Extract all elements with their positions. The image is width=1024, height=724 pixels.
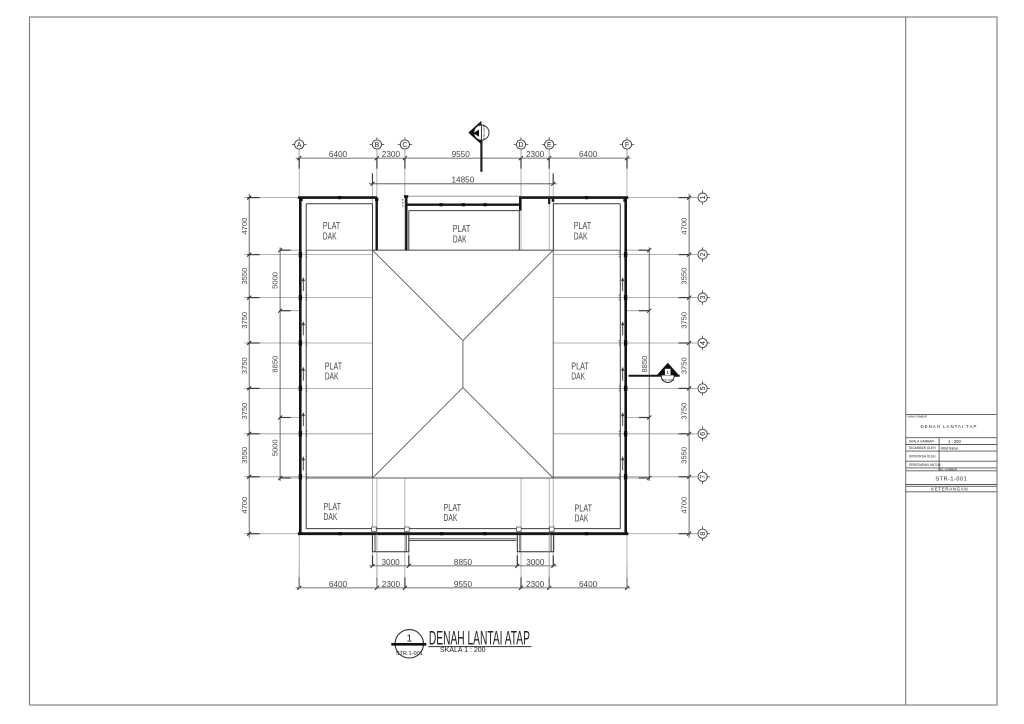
svg-text:9550: 9550 bbox=[452, 150, 471, 159]
svg-text:A: A bbox=[297, 142, 302, 149]
svg-text:2300: 2300 bbox=[526, 580, 545, 589]
svg-text:DAK: DAK bbox=[571, 372, 585, 383]
svg-text:4700: 4700 bbox=[680, 218, 689, 235]
svg-text:14850: 14850 bbox=[452, 176, 475, 185]
svg-text:3750: 3750 bbox=[680, 403, 689, 420]
svg-text:KETERANGAN: KETERANGAN bbox=[931, 487, 968, 492]
svg-text:DAK: DAK bbox=[574, 232, 588, 243]
svg-text:2300: 2300 bbox=[526, 150, 545, 159]
svg-text:3000: 3000 bbox=[526, 558, 545, 567]
svg-text:DENAH LANTAI TAP: DENAH LANTAI TAP bbox=[921, 424, 978, 429]
svg-text:6400: 6400 bbox=[579, 580, 598, 589]
svg-text:3550: 3550 bbox=[240, 447, 249, 464]
svg-text:4: 4 bbox=[700, 341, 707, 345]
svg-text:3750: 3750 bbox=[240, 357, 249, 374]
svg-text:6400: 6400 bbox=[329, 150, 348, 159]
svg-text:2: 2 bbox=[700, 253, 707, 257]
svg-text:STR.1-001: STR.1-001 bbox=[661, 378, 674, 382]
svg-text:NO. GAMBAR: NO. GAMBAR bbox=[939, 467, 957, 471]
svg-text:6400: 6400 bbox=[329, 580, 348, 589]
svg-text:DAK: DAK bbox=[453, 234, 467, 245]
svg-text:DIPERIKSA OLEH: DIPERIKSA OLEH bbox=[909, 455, 936, 459]
svg-text:C: C bbox=[402, 142, 407, 149]
svg-text:8850: 8850 bbox=[271, 356, 280, 373]
svg-text:8: 8 bbox=[700, 532, 707, 536]
svg-text:DAK: DAK bbox=[575, 514, 589, 525]
svg-text:B: B bbox=[375, 142, 380, 149]
svg-text:1: 1 bbox=[666, 370, 669, 375]
svg-text:1 : 200: 1 : 200 bbox=[948, 439, 961, 444]
svg-text:DIGAMBAR OLEH: DIGAMBAR OLEH bbox=[909, 446, 936, 450]
svg-text:4700: 4700 bbox=[680, 497, 689, 514]
svg-text:5: 5 bbox=[700, 386, 707, 390]
svg-text:STR.1-001: STR.1-001 bbox=[396, 651, 423, 657]
svg-text:4700: 4700 bbox=[240, 218, 249, 235]
svg-text:3550: 3550 bbox=[680, 447, 689, 464]
svg-text:1: 1 bbox=[700, 196, 707, 200]
svg-text:7: 7 bbox=[700, 475, 707, 479]
svg-text:2300: 2300 bbox=[382, 580, 401, 589]
svg-text:3550: 3550 bbox=[240, 268, 249, 285]
svg-text:4700: 4700 bbox=[240, 497, 249, 514]
svg-text:E: E bbox=[547, 142, 552, 149]
svg-text:DAK: DAK bbox=[324, 512, 338, 523]
svg-text:8850: 8850 bbox=[640, 356, 649, 373]
svg-text:D: D bbox=[518, 142, 523, 149]
svg-text:DAK: DAK bbox=[323, 232, 337, 243]
svg-text:SKALA GAMBAR: SKALA GAMBAR bbox=[909, 440, 934, 444]
svg-text:3750: 3750 bbox=[240, 403, 249, 420]
svg-text:STR-1-001: STR-1-001 bbox=[482, 125, 486, 139]
svg-text:8850: 8850 bbox=[454, 558, 473, 567]
svg-text:DAK: DAK bbox=[325, 372, 339, 383]
svg-text:SKALA 1 : 200: SKALA 1 : 200 bbox=[440, 647, 486, 654]
svg-text:1: 1 bbox=[407, 633, 413, 644]
svg-text:3: 3 bbox=[700, 296, 707, 300]
svg-text:3000: 3000 bbox=[381, 558, 400, 567]
svg-text:STR-1-001: STR-1-001 bbox=[935, 476, 967, 482]
svg-text:6400: 6400 bbox=[579, 150, 598, 159]
svg-text:3750: 3750 bbox=[680, 312, 689, 329]
svg-text:NAMA GAMBAR: NAMA GAMBAR bbox=[908, 415, 927, 419]
svg-text:3750: 3750 bbox=[680, 357, 689, 374]
svg-text:DAK: DAK bbox=[444, 513, 458, 524]
svg-text:3750: 3750 bbox=[240, 312, 249, 329]
svg-text:Rifat Rabal: Rifat Rabal bbox=[941, 446, 958, 450]
svg-text:5000: 5000 bbox=[271, 439, 280, 456]
svg-text:PEREDARAN UNTUK: PEREDARAN UNTUK bbox=[909, 463, 942, 467]
svg-text:5000: 5000 bbox=[271, 272, 280, 289]
svg-text:9550: 9550 bbox=[454, 580, 473, 589]
svg-text:F: F bbox=[625, 142, 629, 149]
svg-text:3550: 3550 bbox=[680, 268, 689, 285]
svg-text:6: 6 bbox=[700, 432, 707, 436]
svg-text:2300: 2300 bbox=[382, 150, 401, 159]
